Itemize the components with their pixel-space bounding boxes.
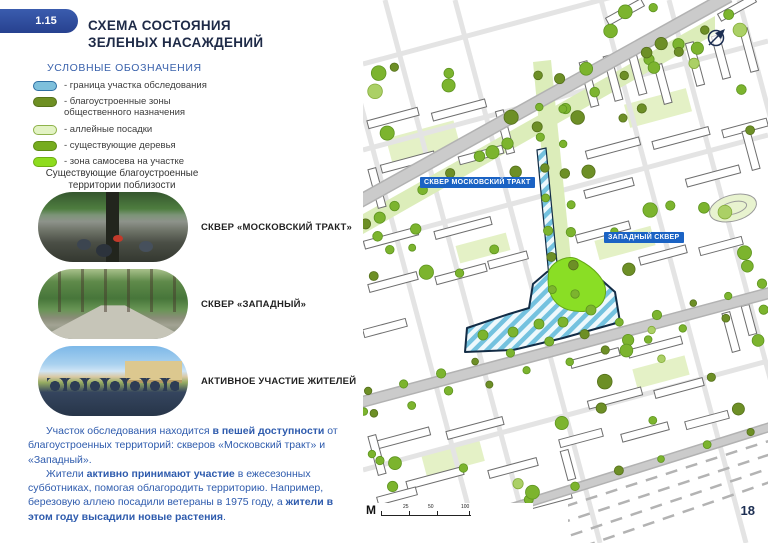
photo-caption: АКТИВНОЕ УЧАСТИЕ ЖИТЕЛЕЙ: [201, 376, 356, 387]
scale-line: 2550100: [381, 504, 471, 516]
nearby-title-line1: Существующие благоустроенные: [46, 168, 199, 179]
title-line2: ЗЕЛЕНЫХ НАСАЖДЕНИЙ: [88, 35, 263, 50]
legend-item: - существующие деревья: [33, 140, 353, 151]
description-text: Участок обследования находится в пешей д…: [28, 424, 360, 524]
title-line1: СХЕМА СОСТОЯНИЯ: [88, 18, 231, 33]
legend-swatch-icon: [33, 157, 57, 167]
scale-tick-label: 50: [428, 504, 434, 510]
scale-letter: М: [366, 504, 376, 516]
photo-moskovsky-trakt: [38, 192, 188, 262]
legend-item-label: - граница участка обследования: [64, 80, 207, 91]
photo-caption: СКВЕР «ЗАПАДНЫЙ»: [201, 299, 306, 310]
photo-zapadny: [38, 269, 188, 339]
scale-tick-label: 25: [403, 504, 409, 510]
photo-caption: СКВЕР «МОСКОВСКИЙ ТРАКТ»: [201, 222, 352, 233]
legend-item-label: - аллейные посадки: [64, 124, 152, 135]
map-label-moskovsky-trakt: СКВЕР МОСКОВСКИЙ ТРАКТ: [420, 177, 535, 188]
description-paragraph: Участок обследования находится в пешей д…: [28, 424, 360, 467]
legend-item-label: - существующие деревья: [64, 140, 176, 151]
photo-row-residents: АКТИВНОЕ УЧАСТИЕ ЖИТЕЛЕЙ: [38, 346, 356, 416]
photo-row-moskovsky-trakt: СКВЕР «МОСКОВСКИЙ ТРАКТ»: [38, 192, 356, 262]
page-number: 18: [741, 503, 755, 518]
nearby-title-line2: территории поблизости: [69, 180, 176, 191]
legend-swatch-icon: [33, 97, 57, 107]
scale-tick-label: 100: [461, 504, 469, 510]
legend-swatch-icon: [33, 141, 57, 151]
photo-row-zapadny: СКВЕР «ЗАПАДНЫЙ»: [38, 269, 356, 339]
photo-residents: [38, 346, 188, 416]
compass-icon: [709, 29, 726, 46]
legend-item: - благоустроенные зоны общественного наз…: [33, 96, 353, 118]
legend-item-label: - зона самосева на участке: [64, 156, 184, 167]
legend-swatch-icon: [33, 81, 57, 91]
legend-item: - граница участка обследования: [33, 80, 353, 91]
legend-item: - зона самосева на участке: [33, 156, 353, 167]
photo-list: СКВЕР «МОСКОВСКИЙ ТРАКТ» СКВЕР «ЗАПАДНЫЙ…: [38, 192, 356, 423]
scale-bar: М 2550100: [366, 504, 471, 516]
map-canvas: [363, 0, 768, 543]
map-label-zapadny-skver: ЗАПАДНЫЙ СКВЕР: [604, 232, 684, 243]
legend-item-label: - благоустроенные зоны общественного наз…: [64, 96, 226, 118]
slide-page: 1.15 СХЕМА СОСТОЯНИЯ ЗЕЛЕНЫХ НАСАЖДЕНИЙ …: [0, 0, 768, 543]
legend: - граница участка обследования- благоуст…: [33, 80, 353, 172]
description-paragraph: Жители активно принимают участие в ежесе…: [28, 467, 360, 524]
legend-title: УСЛОВНЫЕ ОБОЗНАЧЕНИЯ: [47, 62, 202, 74]
legend-swatch-icon: [33, 125, 57, 135]
legend-item: - аллейные посадки: [33, 124, 353, 135]
city-map: СКВЕР МОСКОВСКИЙ ТРАКТ ЗАПАДНЫЙ СКВЕР М …: [363, 0, 768, 543]
section-number-badge: 1.15: [0, 9, 78, 33]
page-title: СХЕМА СОСТОЯНИЯ ЗЕЛЕНЫХ НАСАЖДЕНИЙ: [88, 17, 263, 52]
nearby-territories-title: Существующие благоустроенные территории …: [24, 168, 220, 192]
